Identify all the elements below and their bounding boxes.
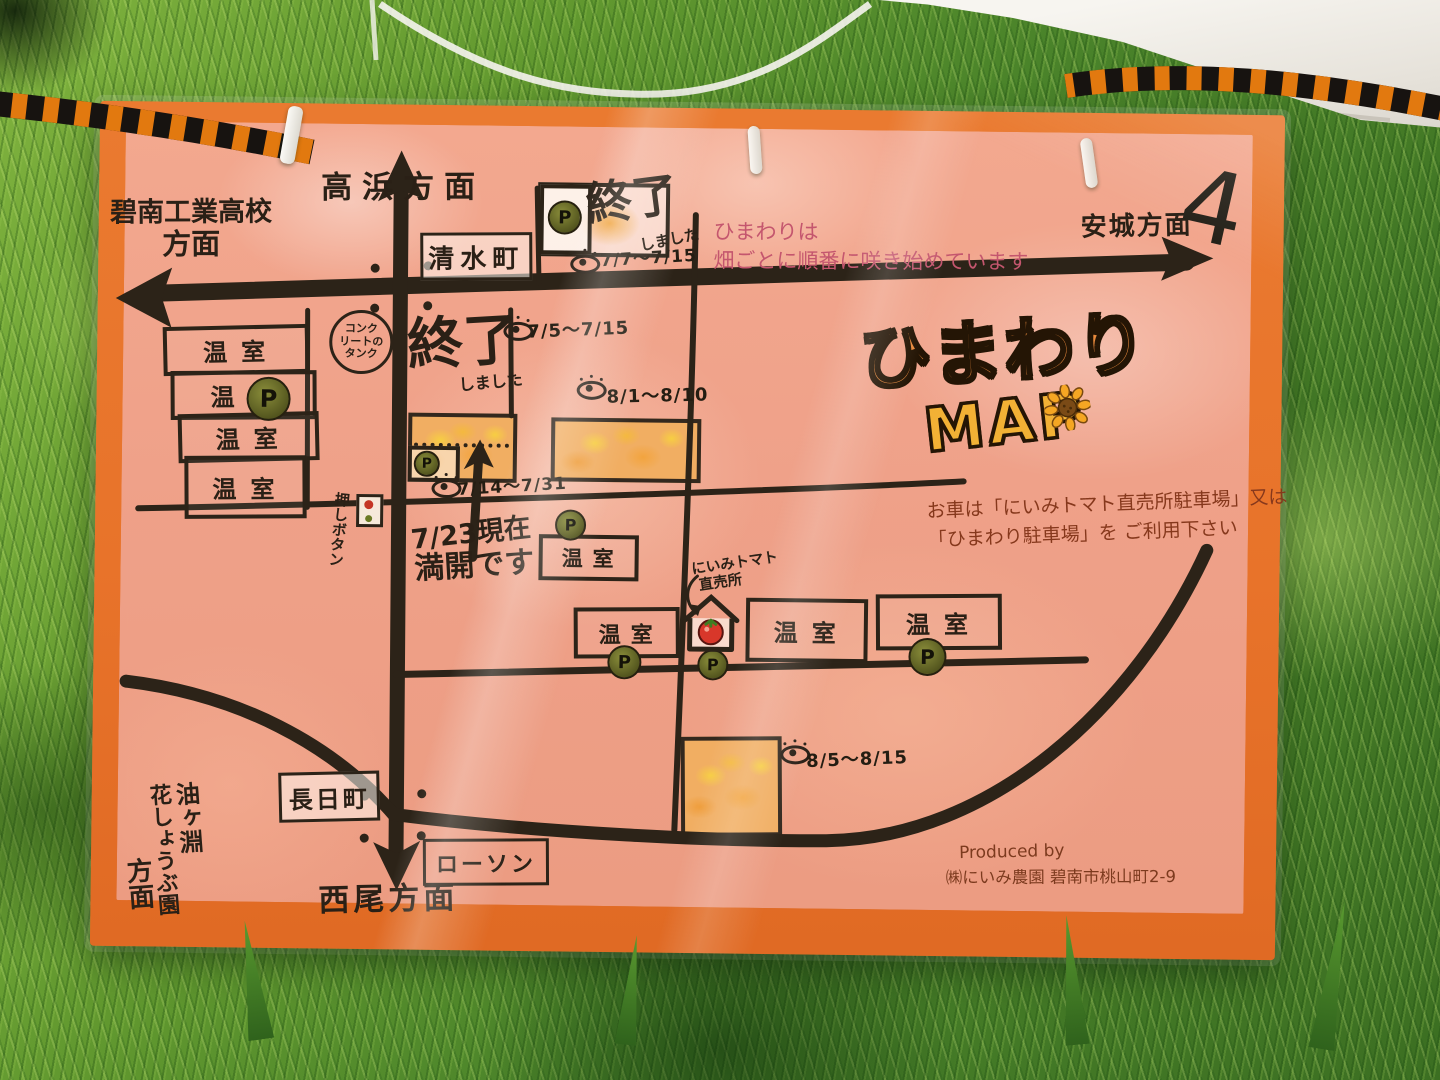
credit-line1: Produced by (959, 842, 1065, 864)
ended-label-2: 終了 (406, 308, 522, 379)
logo-title: ひまわり (858, 304, 1150, 401)
bloom-note: ひまわりは 畑ごとに順番に咲き始めています (713, 220, 1028, 274)
sign-nagahicho: 長日町 (278, 771, 380, 823)
house-icon (682, 593, 741, 654)
eye-icon (570, 255, 600, 274)
field-d-sunflowers (681, 736, 783, 837)
credit-line2: ㈱にいみ農園 碧南市桃山町2-9 (946, 868, 1176, 888)
sunflower-icon (1041, 381, 1094, 434)
photo-stage: P P (0, 0, 1440, 1080)
greenhouse-box: 温室 (184, 455, 306, 519)
field-b-sunflowers (551, 417, 702, 483)
direction-takahama: 高浜方面 (321, 170, 485, 206)
date-field-d: 8/5〜8/15 (806, 748, 909, 773)
greenhouse-box: 温室 (745, 598, 868, 663)
greenhouse-box: 温室 (538, 534, 639, 581)
direction-nishio: 西尾方面 (318, 881, 459, 920)
sign-shimizucho: 清水町 (420, 232, 532, 281)
direction-hekinan: 碧南工業高校 方面 (103, 196, 278, 261)
eye-icon (577, 381, 607, 400)
direction-aburagafuchi: 油ヶ淵 花しょうぶ園 方面 (115, 781, 210, 947)
push-button-icon (356, 494, 383, 527)
greenhouse-box: 温室 (163, 324, 310, 376)
date-field-b: 8/1〜8/10 (606, 385, 708, 408)
date-field-a: 7/5〜7/15 (527, 319, 630, 344)
field-c-sunflowers: P (408, 413, 518, 483)
sign-lawson: ローソン (423, 838, 549, 886)
tomato-icon (699, 620, 723, 644)
mankai-note: 7/23現在 満開です (409, 512, 536, 590)
poster: P P (90, 101, 1285, 960)
